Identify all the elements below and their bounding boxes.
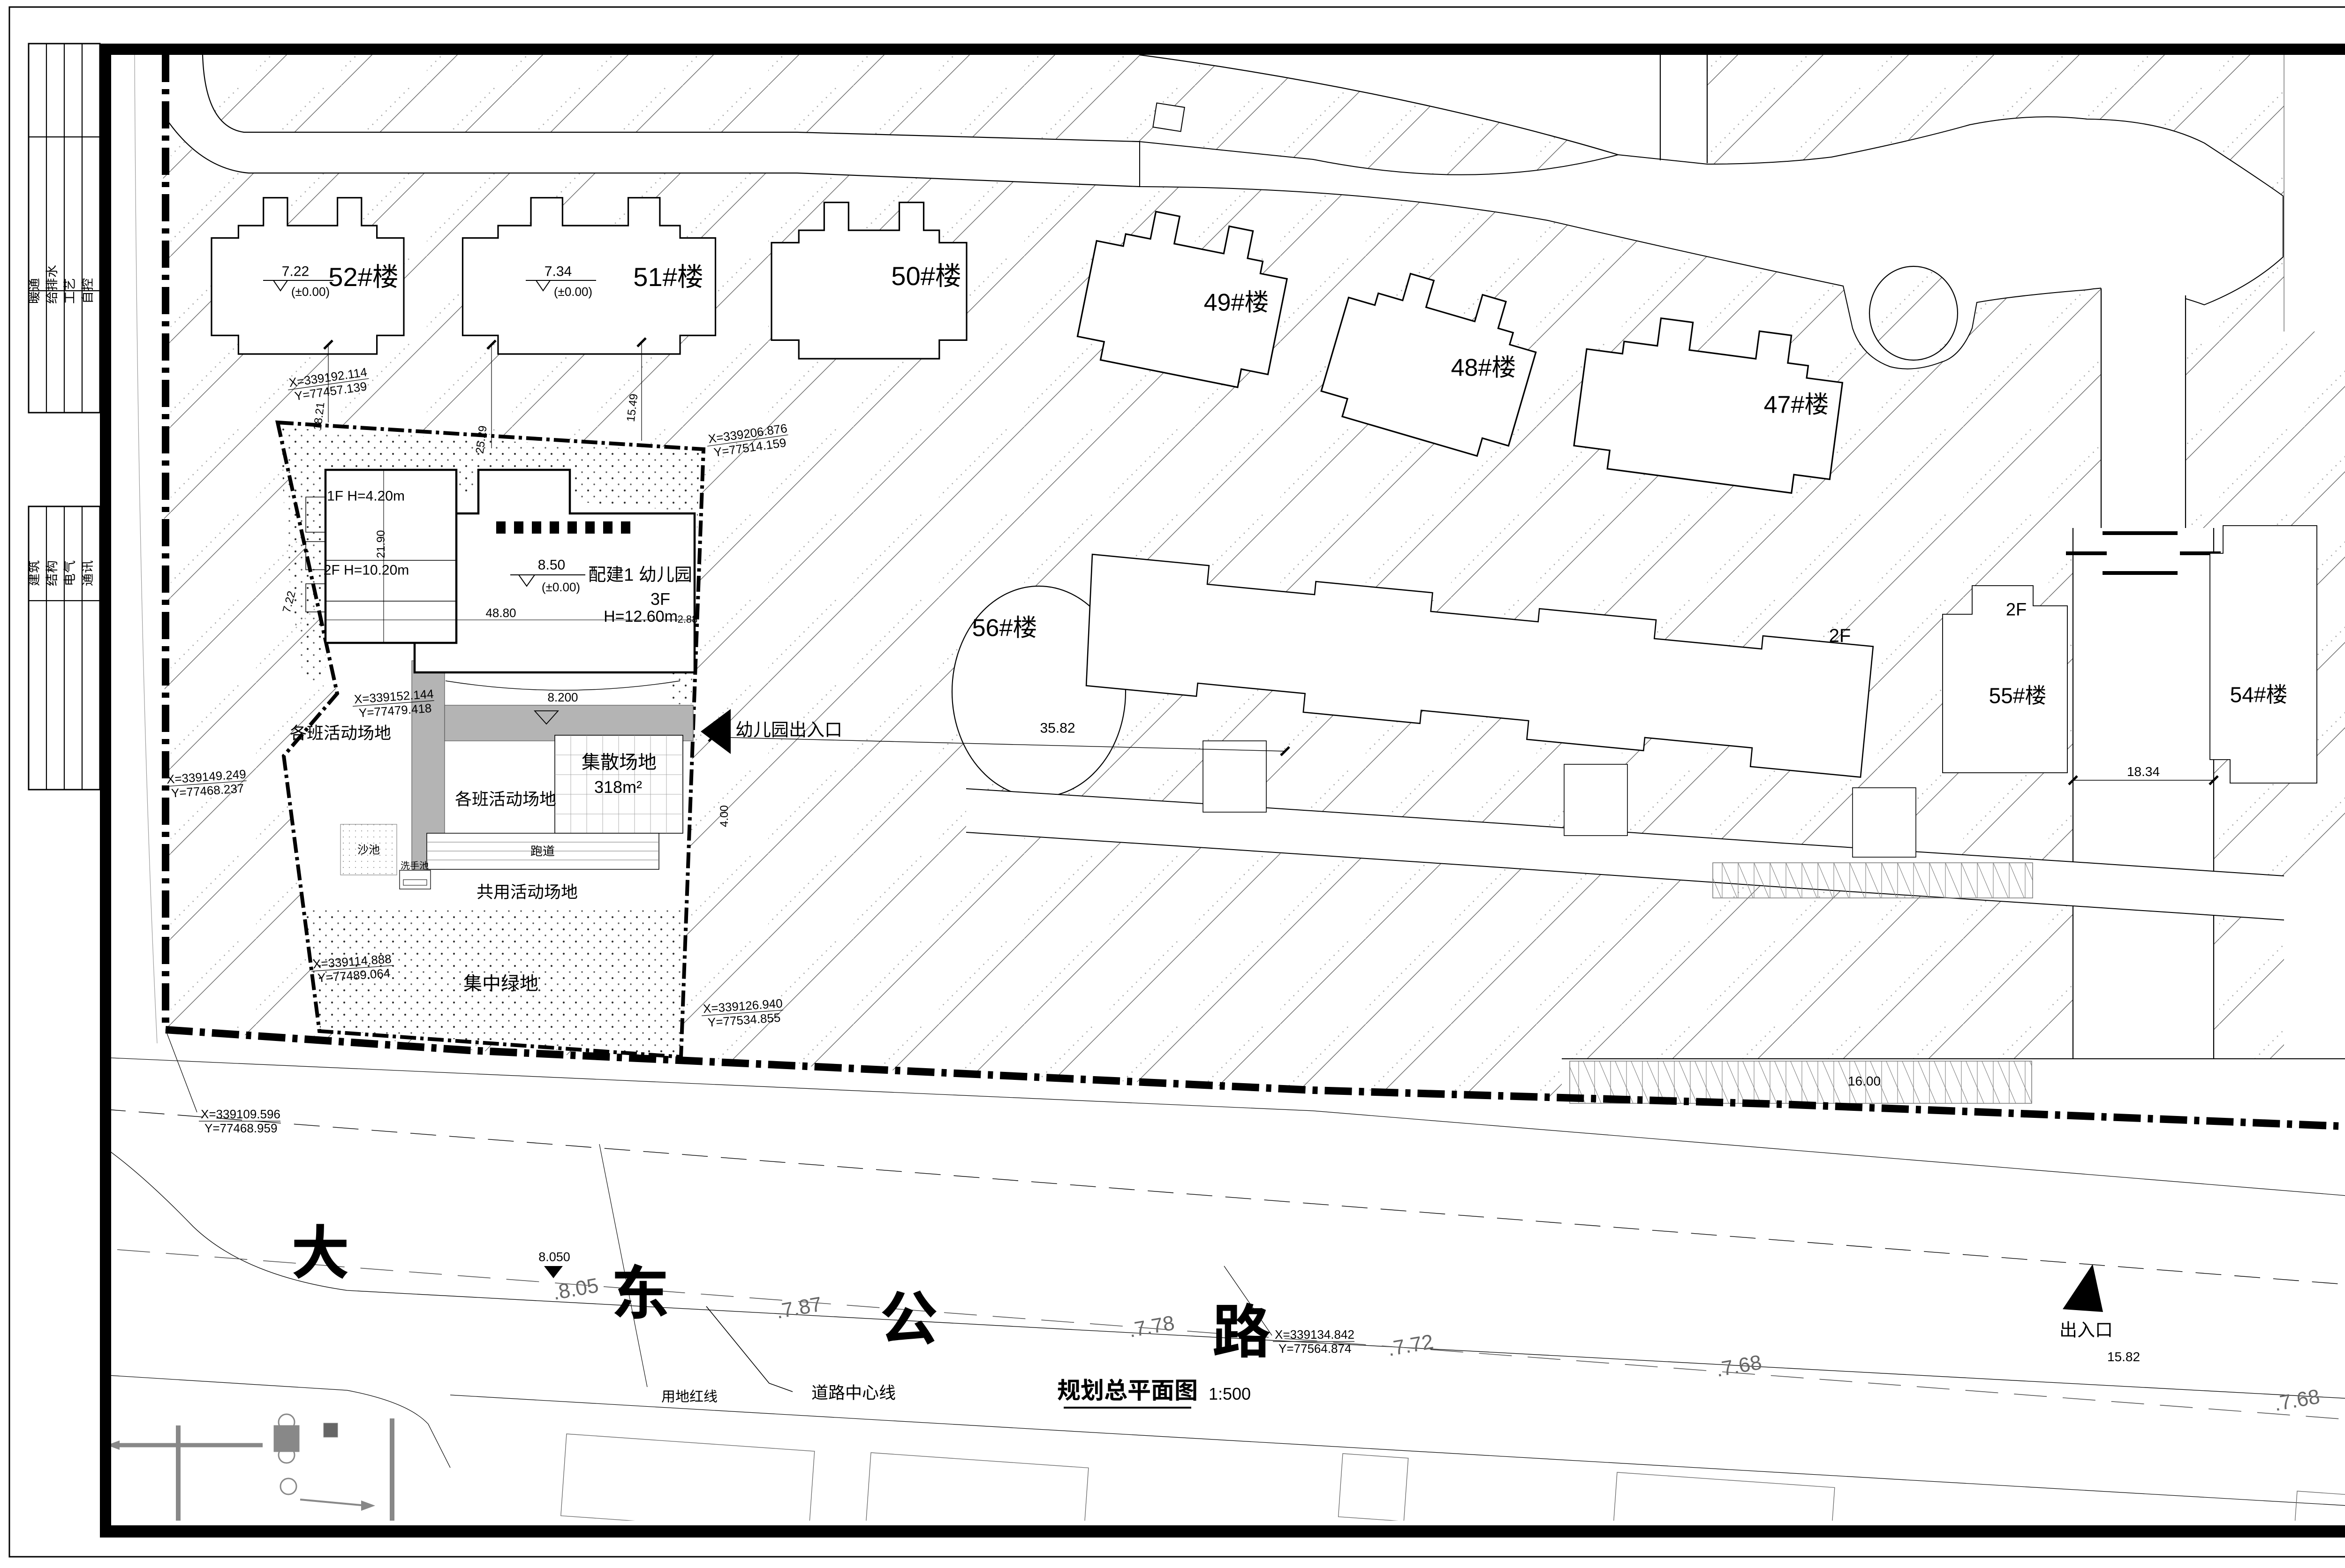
svg-text:.7.68: .7.68 bbox=[2272, 1385, 2322, 1416]
svg-text:X=339134.842: X=339134.842 bbox=[1275, 1327, 1354, 1342]
svg-text:55#: 55# bbox=[1989, 683, 2025, 708]
svg-text:8.200: 8.200 bbox=[547, 690, 578, 704]
svg-text:7.34: 7.34 bbox=[545, 264, 572, 279]
svg-text:318m²: 318m² bbox=[594, 777, 642, 797]
svg-text:2.88: 2.88 bbox=[678, 613, 698, 625]
svg-text:56#: 56# bbox=[972, 614, 1013, 641]
svg-text:8.50: 8.50 bbox=[538, 558, 565, 573]
svg-text:Y=77468.959: Y=77468.959 bbox=[204, 1121, 277, 1135]
svg-text:50#: 50# bbox=[891, 261, 935, 291]
svg-text:21.90: 21.90 bbox=[375, 530, 387, 558]
svg-text:3F: 3F bbox=[651, 589, 670, 609]
svg-text:54#: 54# bbox=[2230, 682, 2266, 707]
svg-text:.7.68: .7.68 bbox=[1714, 1351, 1763, 1381]
svg-text:2F: 2F bbox=[1829, 626, 1851, 646]
svg-text:.7.78: .7.78 bbox=[1127, 1312, 1176, 1342]
svg-text:1F H=4.20m: 1F H=4.20m bbox=[327, 489, 405, 504]
svg-text:16.00: 16.00 bbox=[1848, 1074, 1881, 1088]
svg-text:.7.72: .7.72 bbox=[1386, 1330, 1435, 1361]
svg-text:52#: 52# bbox=[328, 262, 372, 292]
svg-text:(±0.00): (±0.00) bbox=[291, 285, 330, 299]
svg-text:(±0.00): (±0.00) bbox=[554, 285, 592, 299]
svg-text:51#: 51# bbox=[633, 262, 677, 292]
svg-text:4.00: 4.00 bbox=[718, 805, 731, 827]
svg-text:.8.05: .8.05 bbox=[551, 1274, 600, 1304]
svg-text:49#: 49# bbox=[1204, 289, 1245, 316]
svg-text:H=12.60m: H=12.60m bbox=[604, 608, 678, 626]
svg-text:15.82: 15.82 bbox=[2107, 1349, 2140, 1364]
svg-text:.7.87: .7.87 bbox=[774, 1293, 824, 1323]
svg-text:Y=77564.874: Y=77564.874 bbox=[1278, 1342, 1351, 1356]
svg-text:48#: 48# bbox=[1451, 354, 1492, 381]
svg-text:8.050: 8.050 bbox=[538, 1250, 570, 1264]
svg-text:1: 1 bbox=[624, 565, 639, 585]
svg-text:35.82: 35.82 bbox=[1040, 721, 1075, 736]
svg-text:1:500: 1:500 bbox=[1209, 1384, 1251, 1403]
svg-text:2F H=10.20m: 2F H=10.20m bbox=[324, 563, 409, 578]
svg-text:48.80: 48.80 bbox=[485, 606, 516, 620]
svg-text:47#: 47# bbox=[1764, 391, 1805, 418]
svg-text:2F: 2F bbox=[2006, 600, 2027, 619]
svg-text:7.22: 7.22 bbox=[282, 264, 309, 279]
svg-text:X=339109.596: X=339109.596 bbox=[201, 1107, 280, 1121]
svg-text:(±0.00): (±0.00) bbox=[542, 580, 580, 594]
svg-text:18.34: 18.34 bbox=[2127, 764, 2160, 779]
